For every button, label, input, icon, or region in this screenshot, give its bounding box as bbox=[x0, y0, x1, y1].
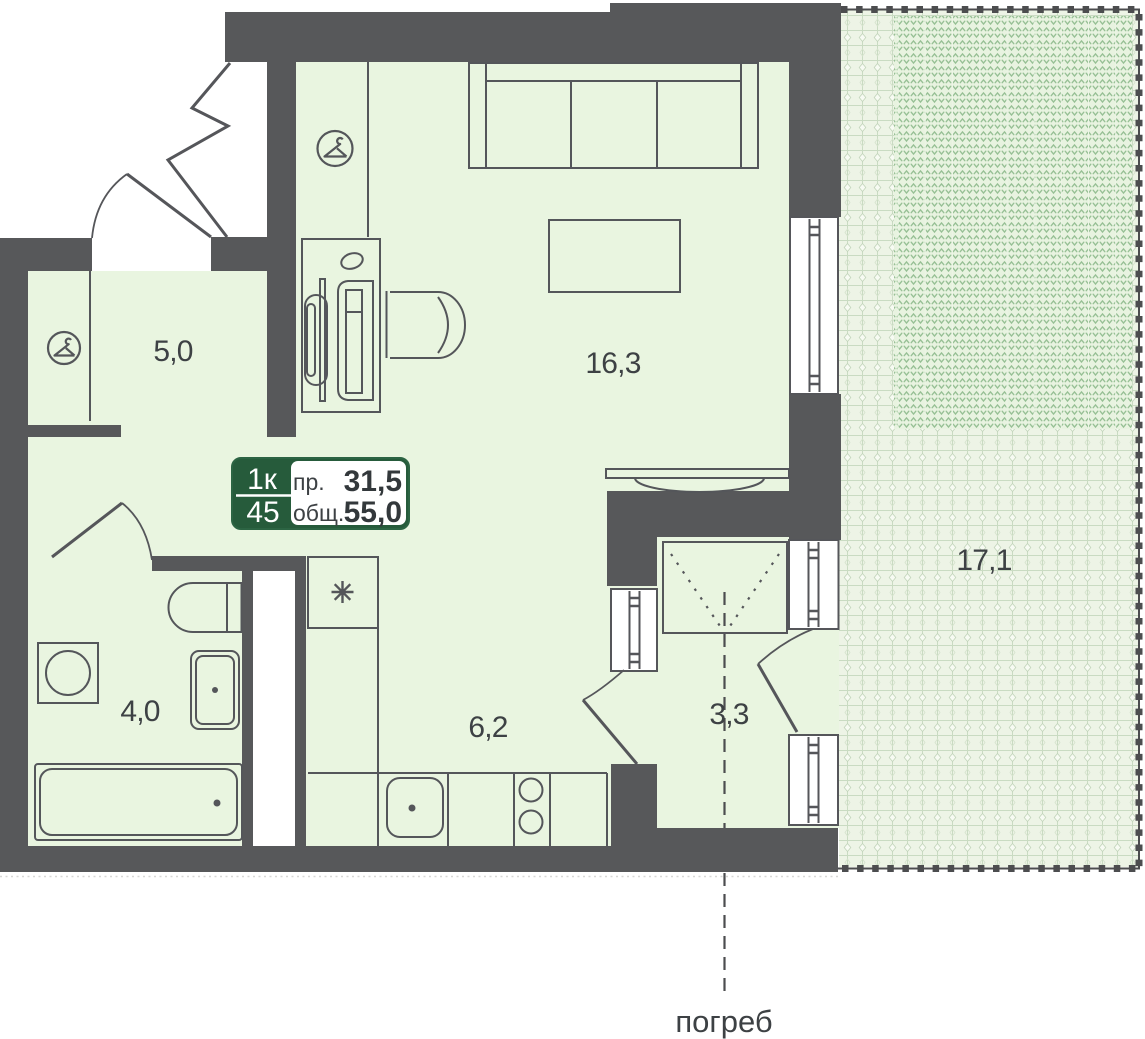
svg-text:45: 45 bbox=[246, 496, 279, 529]
svg-text:55,0: 55,0 bbox=[344, 496, 402, 529]
svg-text:пр.: пр. bbox=[293, 469, 325, 495]
svg-text:5,0: 5,0 bbox=[153, 335, 192, 368]
svg-text:1к: 1к bbox=[247, 463, 278, 496]
svg-text:31,5: 31,5 bbox=[344, 465, 402, 498]
svg-text:погреб: погреб bbox=[675, 1004, 772, 1039]
svg-text:6,2: 6,2 bbox=[468, 711, 507, 744]
svg-text:16,3: 16,3 bbox=[585, 347, 640, 380]
svg-text:17,1: 17,1 bbox=[956, 544, 1011, 577]
svg-text:4,0: 4,0 bbox=[120, 695, 159, 728]
svg-text:общ.: общ. bbox=[293, 500, 344, 526]
svg-text:3,3: 3,3 bbox=[709, 698, 748, 731]
